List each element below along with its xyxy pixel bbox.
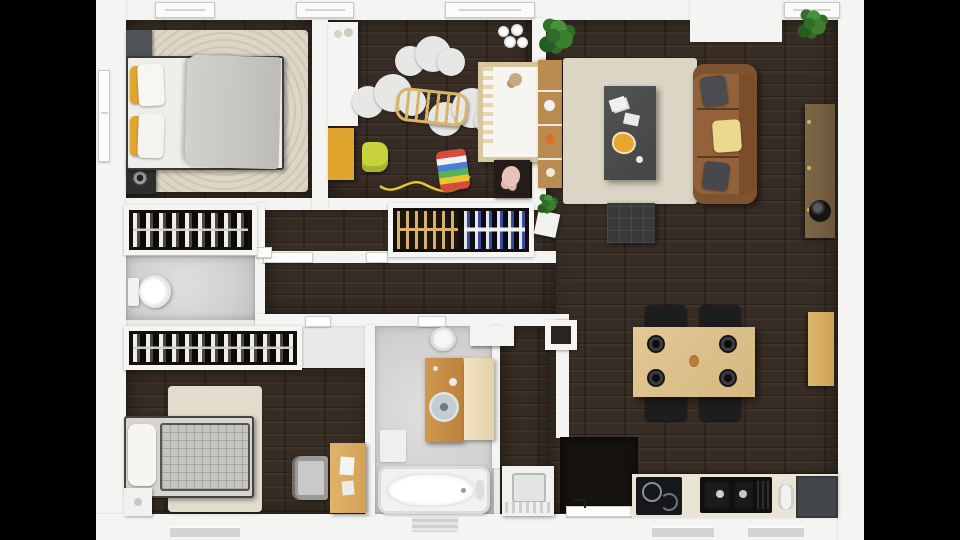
tub-drain [461,488,466,493]
door-wc [256,247,272,258]
crib-rail [483,67,493,147]
toilet-tank [128,278,139,306]
shelf-cup [546,168,555,177]
dining-table [633,327,755,397]
white-console [470,326,514,346]
dinner-plate [719,335,737,353]
leather-sofa [693,64,757,204]
ottoman [607,203,655,243]
nightstand [126,30,152,58]
door-nursery [366,252,388,263]
dish-rack [778,484,794,510]
bed-pillow [137,114,165,159]
shelf-bowl [545,134,555,144]
desk-papers [339,457,354,476]
entry-door-handle [574,499,586,508]
faucet [449,378,457,386]
window-left-wall [98,70,110,162]
toy-box [494,160,530,198]
wall-right [838,0,864,540]
wardrobe-decor [344,28,353,37]
closet-lower [124,326,302,370]
black-bowl [809,200,831,222]
tall-cabinet [464,358,494,440]
bathroom-ceiling-lamp [430,327,456,351]
mustard-dresser [328,128,354,180]
window-living [784,2,840,18]
closet-interior [129,210,252,250]
sill-bedroom-2 [170,526,240,537]
plaid-blanket [160,423,250,491]
window-nursery-left [296,2,354,18]
table-centerpiece [689,355,699,367]
window-bedroom-1 [155,2,215,18]
wood-sideboard [805,104,835,238]
bed-pillow [128,424,156,486]
double-sink [700,477,772,513]
sill-kitchen-1 [652,526,714,537]
entry-console [545,320,577,350]
potted-plant [804,18,816,30]
vanity-decor [433,366,438,371]
wardrobe-decor [334,30,342,38]
dinner-plate [647,335,665,353]
hall-wardrobe [388,203,534,257]
bath-step-mat [412,516,458,532]
black-doormat [560,437,638,513]
plush-bunny [500,164,522,188]
hanging-clothes-blue [464,211,525,249]
sill-kitchen-2 [748,526,804,537]
teddy-bear [509,73,522,86]
desk [330,443,366,513]
closet-interior [129,331,297,365]
floor-plan-render: { "scene": { "title": "Two-bedroom apart… [0,0,960,540]
magazines [623,113,640,127]
ceiling-lamp [496,24,528,50]
office-chair [292,456,328,500]
crib [478,62,544,162]
bed-pillow [137,63,165,106]
wood-vanity [425,358,463,442]
magazines [609,96,628,112]
cloud-rug [395,36,465,78]
hanging-clothes [133,213,248,247]
bookshelf [538,60,562,188]
shelf-plate [544,100,555,111]
pull-toy [435,148,470,192]
wardrobe-interior [393,208,529,252]
nightstand-knob [134,498,142,506]
sofa-cushion-gray [699,74,729,107]
nightstand [124,488,152,516]
dark-counter [796,476,838,518]
kitchen-counter [632,474,838,518]
hanging-clothes-tan [397,211,458,249]
wall-bedroom1-nursery [312,18,328,210]
wall-bedroom2-bath [365,325,375,515]
hanging-clothes [133,334,293,362]
bath-mat [380,430,406,462]
decor-bowl [611,130,638,155]
wall-alcove-top-right [690,0,782,42]
desk-papers [341,481,354,496]
double-bed [126,56,284,170]
console-top [551,326,571,344]
heater-dial [132,170,148,186]
wall-hall-south [255,314,569,326]
dining-chair [645,393,687,421]
bathtub [378,466,490,514]
washer-lid [512,473,546,503]
dinner-plate [719,369,737,387]
apartment-plan [96,0,864,540]
door-bedroom-2 [305,316,331,327]
tub-headrest [476,480,484,500]
wood-cabinet [808,312,834,386]
dinner-plate [647,369,665,387]
window-nursery-right [445,2,535,18]
sofa-cushion-gray [701,161,730,192]
washer-vent [505,502,551,513]
single-bed [124,416,254,498]
induction-cooktop [636,477,682,515]
closet-upper [124,205,257,255]
chair-seat [298,461,324,495]
door-bathroom [418,316,446,327]
round-sink [429,392,459,422]
coffee-table [604,86,656,180]
toilet [139,275,171,308]
gray-blanket [185,55,282,169]
sofa-cushion-yellow [712,119,742,153]
coaster [636,156,643,163]
washing-machine [502,466,554,516]
potted-plant [547,29,561,43]
dining-chair [699,393,741,421]
potted-plant [542,200,550,208]
